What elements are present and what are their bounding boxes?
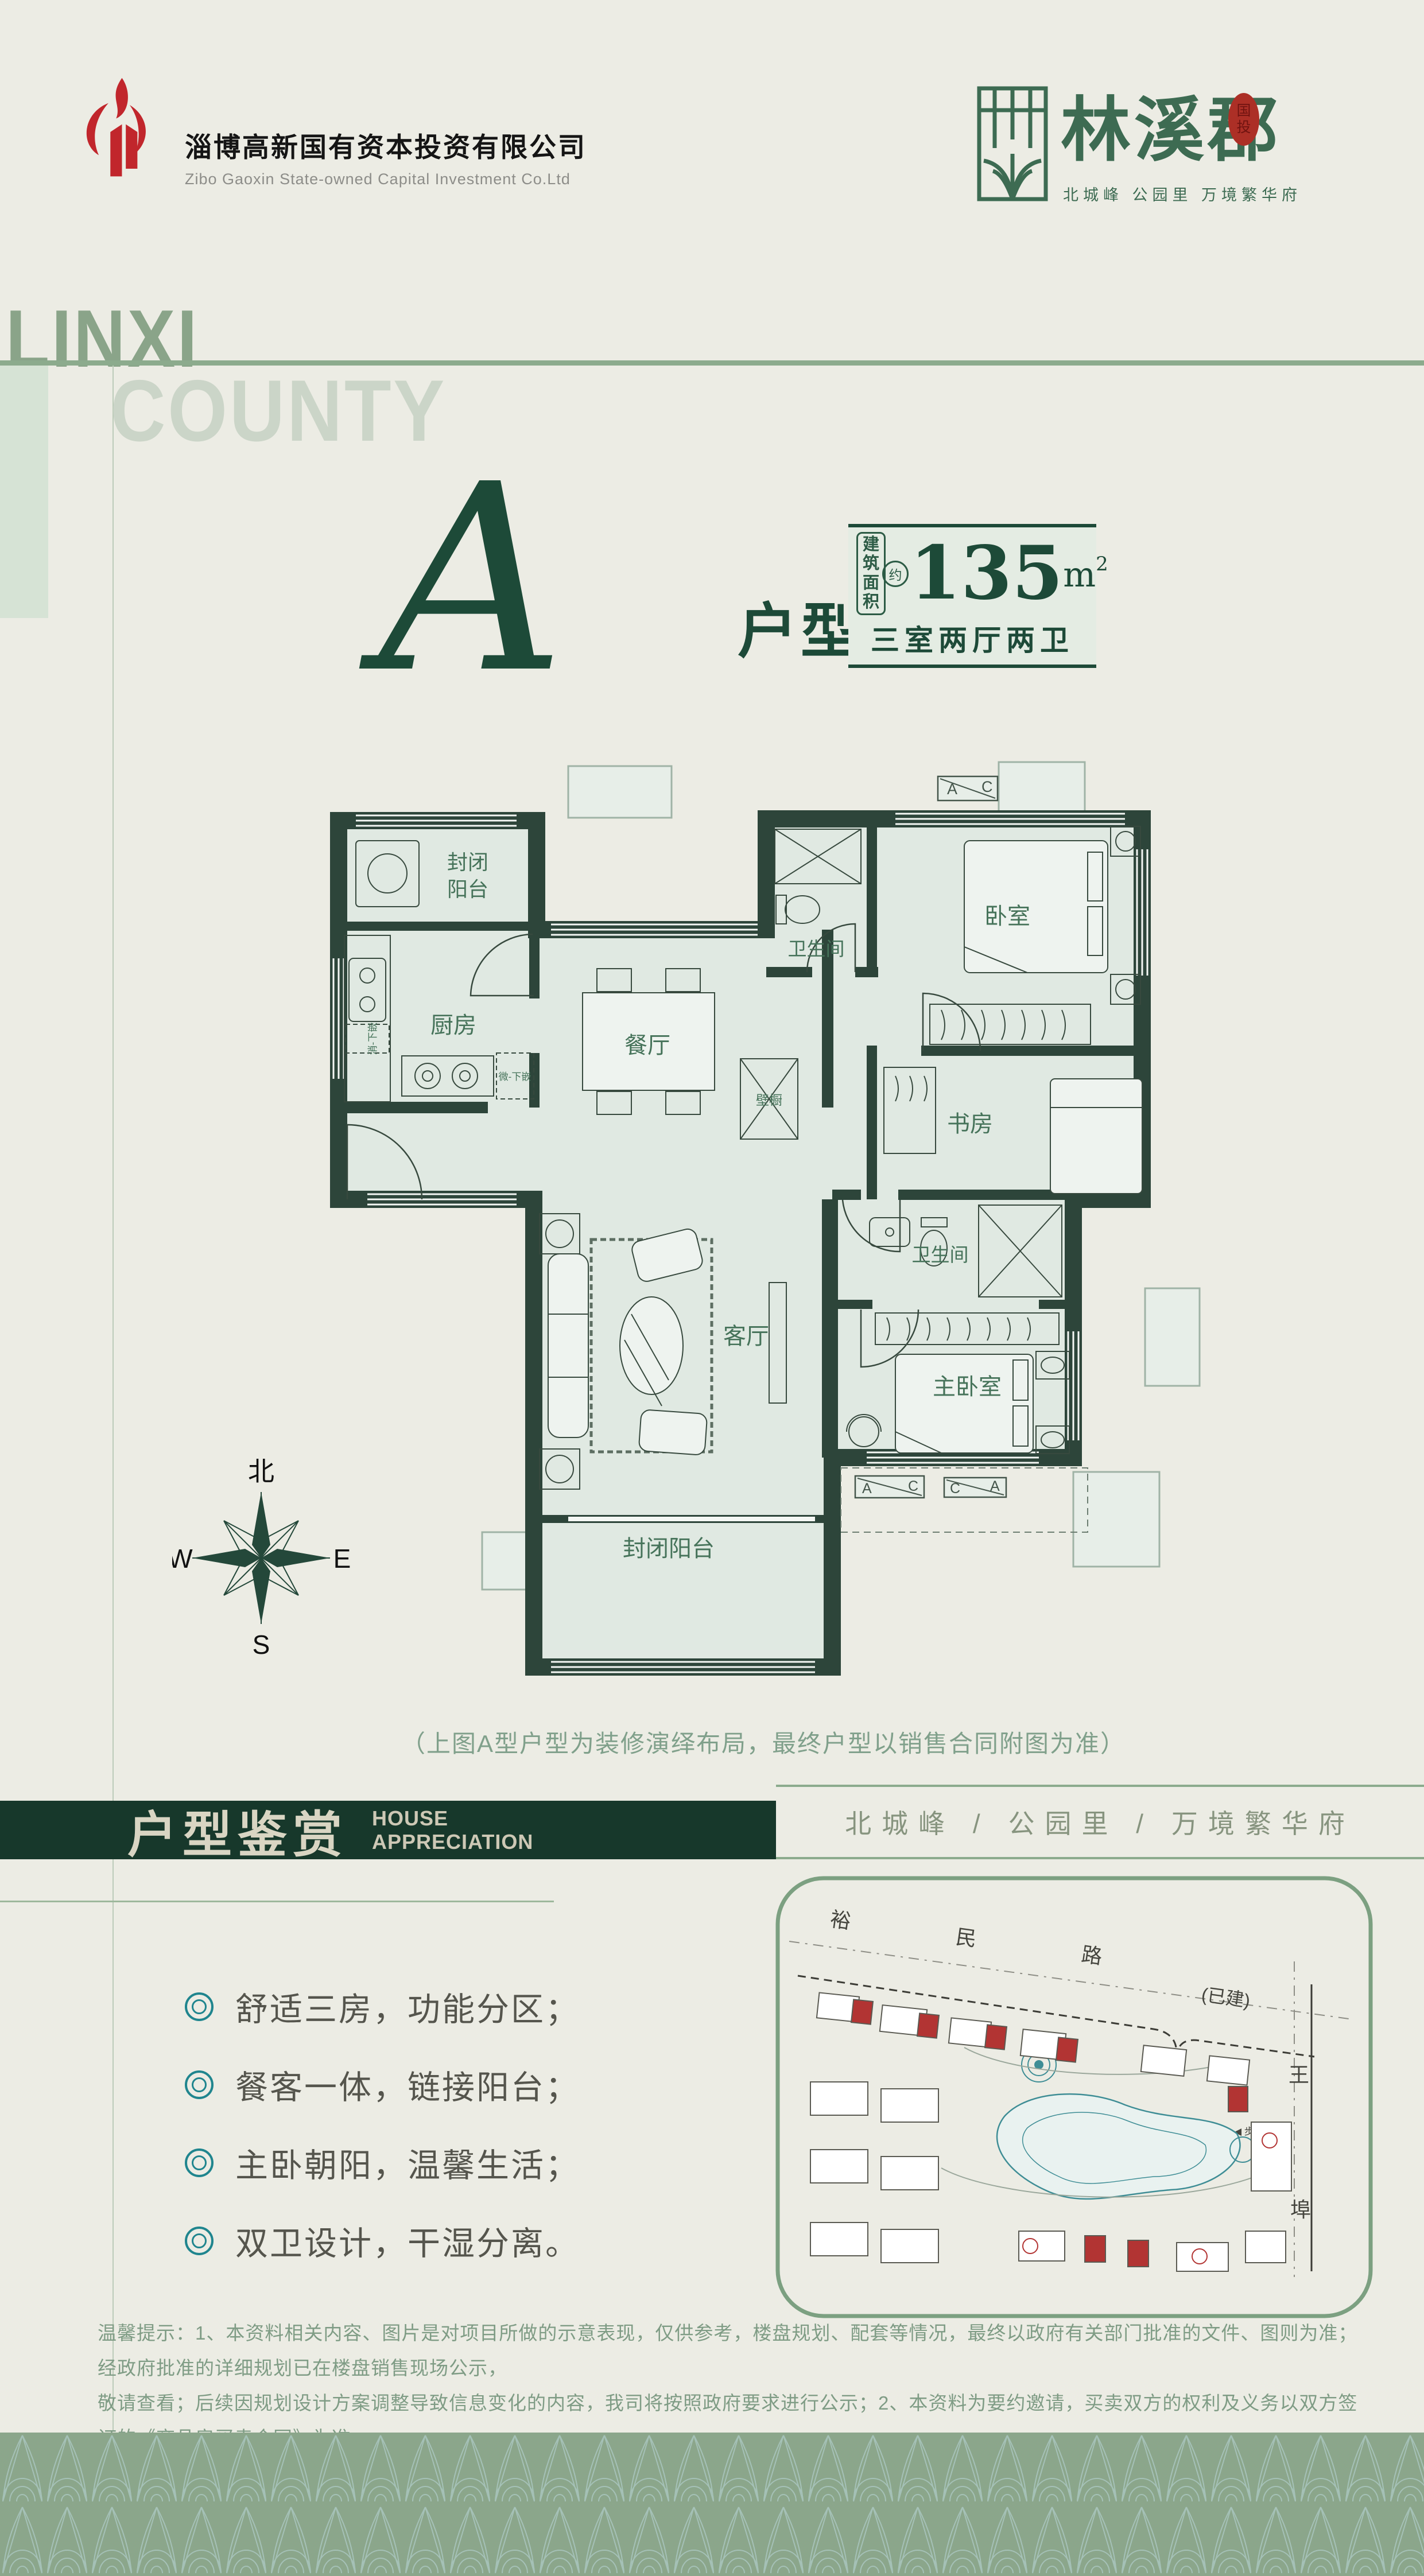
slogan-top-line [776,1785,1424,1787]
list-item: 双卫设计，干湿分离。 [185,2221,580,2261]
list-item: 餐客一体，链接阳台； [185,2065,580,2105]
label-balcony-bottom: 封闭阳台 [623,1536,715,1561]
label-kitchen: 厨房 [430,1013,476,1038]
brand-gate-icon [976,85,1049,203]
feature-list: 舒适三房，功能分区； 餐客一体，链接阳台； 主卧朝阳，温馨生活； 双卫设计，干湿… [185,1987,580,2299]
svg-text:C: C [908,1478,918,1494]
compass-icon: 北 W E S [172,1458,350,1658]
ring-bullet-icon [185,2148,214,2177]
company-block: 淄博高新国有资本投资有限公司 Zibo Gaoxin State-owned C… [185,125,587,188]
label-dining: 餐厅 [624,1033,670,1058]
area-label-box: 建筑 面积 [856,532,886,615]
footer-pattern [0,2433,1424,2576]
list-item: 主卧朝阳，温馨生活； [185,2143,580,2183]
label-bath-master: 卫生间 [912,1244,969,1265]
label-closet: 壁橱 [756,1093,782,1108]
left-thin-line [112,366,114,2431]
label-sterilizer: 消-下嵌 [367,1023,378,1055]
compass-south: S [253,1630,270,1658]
siteplan-map: 裕民路 (已建) 王 埠 ◀ 步行入口 [775,1875,1375,2320]
unit-suffix: 户型 [738,582,864,669]
brand-seal: 国 投 [1228,93,1259,146]
brand-tagline: 北城峰 公园里 万境繁华府 [1063,182,1302,205]
ring-bullet-icon [185,2227,214,2255]
road-right-label-1: 王 [1289,2063,1309,2087]
label-microwave: 微-下嵌 [499,1071,531,1082]
section-bar: 户型鉴赏 HOUSE APPRECIATION [0,1801,776,1859]
svg-text:C: C [981,778,993,795]
seal-char-1: 国 [1236,103,1251,119]
ring-bullet-icon [185,1992,214,2021]
svg-text:A: A [990,1478,1000,1494]
road-top-label: 裕民路 [829,1907,1209,1983]
label-master: 主卧室 [933,1374,1002,1400]
poster-page: 淄博高新国有资本投资有限公司 Zibo Gaoxin State-owned C… [0,0,1424,2576]
list-item: 舒适三房，功能分区； [185,1987,580,2027]
disclaimer-line-1: 温馨提示：1、本资料相关内容、图片是对项目所做的示意表现，仅供参考，楼盘规划、配… [98,2315,1360,2385]
area-label-line1: 建筑 [863,535,879,574]
seal-char-2: 投 [1236,119,1251,136]
company-logo-icon [72,75,178,184]
label-balcony-top-1: 封闭 [447,850,488,874]
slogan-bottom-line [776,1857,1424,1859]
floorplan: A C A C C A 封闭 阳台 厨房 消-下嵌 微-下嵌 餐厅 卫生间 卧室… [321,735,1205,1704]
slogan: 北城峰 / 公园里 / 万境繁华府 [776,1806,1424,1841]
company-name-en: Zibo Gaoxin State-owned Capital Investme… [185,170,587,188]
compass-east: E [333,1544,350,1573]
svg-text:A: A [947,780,957,798]
road-right-label-2: 埠 [1290,2198,1311,2221]
label-bedroom: 卧室 [984,904,1030,929]
plan-caption: （上图A型户型为装修演绎布局，最终户型以销售合同附图为准） [321,1724,1205,1759]
compass-west: W [172,1544,193,1573]
ring-bullet-icon [185,2070,214,2099]
layout-summary: 三室两厅两卫 [856,617,1088,659]
label-balcony-top-2: 阳台 [447,877,488,901]
approx-circle: 约 [882,561,909,587]
section-subtitle: HOUSE APPRECIATION [372,1806,533,1854]
left-accent-band [0,366,48,618]
company-name-cn: 淄博高新国有资本投资有限公司 [185,125,587,165]
compass-north: 北 [248,1458,274,1486]
label-study: 书房 [947,1112,993,1137]
area-value: 135 [910,542,1063,605]
label-bath-top: 卫生间 [788,938,845,959]
area-label-line2: 面积 [863,574,879,612]
area-badge: 建筑 面积 约 135 m2 三室两厅两卫 [848,524,1096,668]
svg-text:C: C [950,1481,960,1497]
bar-sub-line [0,1901,554,1902]
label-living: 客厅 [723,1324,769,1349]
section-title: 户型鉴赏 [127,1794,348,1866]
svg-text:A: A [862,1481,872,1497]
road-built-label: (已建) [1200,1984,1252,2011]
area-unit: m2 [1063,553,1108,595]
unit-letter: A [379,476,565,683]
